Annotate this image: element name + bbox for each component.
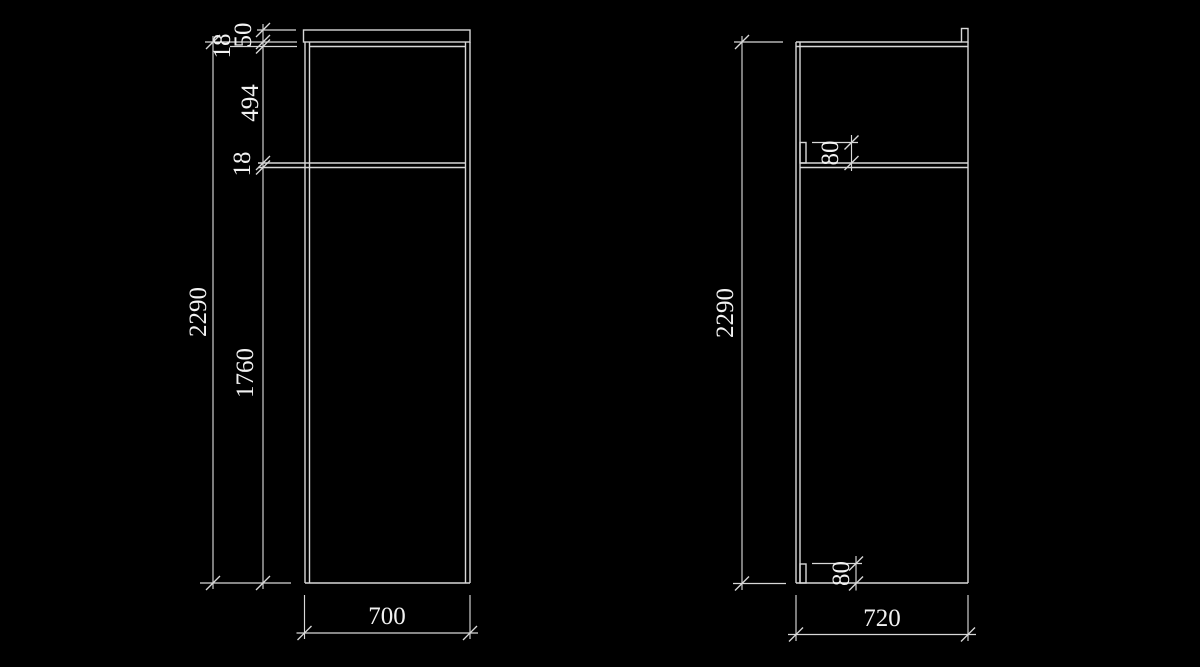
dim-text-overall-width: 700 <box>368 603 406 630</box>
top-cleat-profile <box>800 143 806 164</box>
dim-text-shelf-thickness: 18 <box>229 152 256 177</box>
dim-text-door-height: 1760 <box>232 348 259 398</box>
side-elevation-dimensions: 2290 80 80 720 <box>712 35 976 642</box>
dim-text-crown-height: 50 <box>230 23 257 48</box>
front-elevation <box>258 30 470 583</box>
dim-text-upper-opening-height: 494 <box>237 84 264 122</box>
front-elevation-dimensions: 18 50 494 18 1760 2290 700 <box>185 23 478 641</box>
crown-outline <box>304 30 471 42</box>
side-elevation <box>796 29 968 584</box>
dim-text-bottom-cleat-height: 80 <box>828 561 855 586</box>
cad-drawing-canvas: 18 50 494 18 1760 2290 700 2290 80 <box>0 0 1200 667</box>
bottom-cleat-profile <box>800 564 806 583</box>
dim-text-overall-height: 2290 <box>185 287 212 337</box>
technical-drawing: 18 50 494 18 1760 2290 700 2290 80 <box>0 0 1200 667</box>
dim-text-top-cleat-height: 80 <box>817 141 844 166</box>
crown-side-profile <box>962 29 969 43</box>
dim-text-overall-height: 2290 <box>712 288 739 338</box>
dim-text-overall-depth: 720 <box>863 605 901 632</box>
